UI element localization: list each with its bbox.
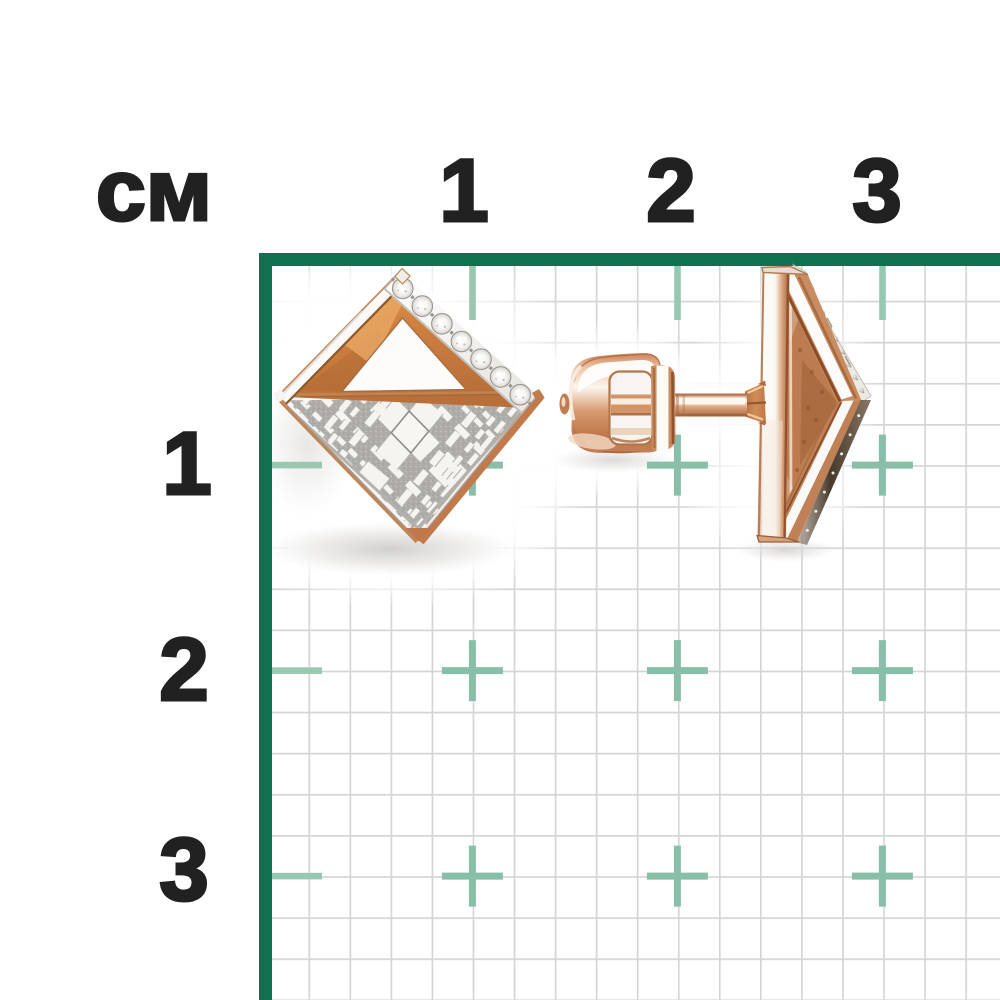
svg-text:см: см	[96, 143, 212, 239]
svg-text:3: 3	[852, 140, 902, 240]
svg-text:3: 3	[159, 819, 209, 919]
svg-text:1: 1	[162, 413, 212, 513]
svg-text:2: 2	[159, 619, 209, 719]
svg-text:2: 2	[646, 140, 696, 240]
svg-text:1: 1	[439, 140, 489, 240]
